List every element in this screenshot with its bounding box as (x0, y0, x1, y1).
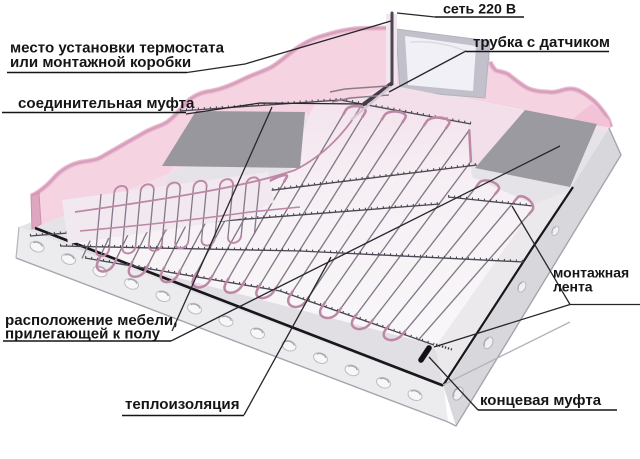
svg-text:или монтажной коробки: или монтажной коробки (10, 54, 191, 71)
svg-text:соединительная муфта: соединительная муфта (18, 95, 195, 112)
svg-text:лента: лента (553, 279, 593, 295)
svg-text:трубка с датчиком: трубка с датчиком (473, 34, 610, 51)
svg-text:прилегающей к полу: прилегающей к полу (5, 326, 161, 343)
svg-text:сеть 220 В: сеть 220 В (443, 2, 516, 18)
svg-text:концевая муфта: концевая муфта (480, 392, 602, 409)
svg-text:теплоизоляция: теплоизоляция (125, 396, 240, 413)
